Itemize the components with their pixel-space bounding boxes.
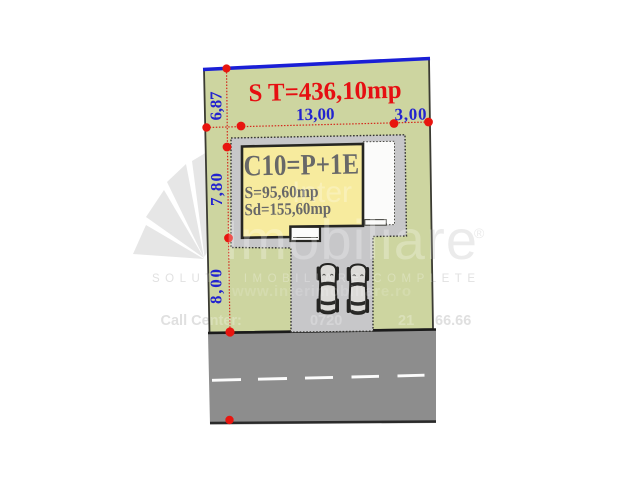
svg-text:0720: 0720 [310,313,342,329]
svg-text:www.interimobiliare.ro: www.interimobiliare.ro [231,283,411,300]
svg-text:S T=436,10mp: S T=436,10mp [248,75,402,107]
svg-text:7,80: 7,80 [207,173,226,206]
svg-text:Inter: Inter [292,176,352,209]
svg-text:21: 21 [398,313,414,329]
svg-text:®: ® [474,225,485,241]
svg-text:3,00: 3,00 [394,104,426,124]
svg-text:6,87: 6,87 [207,91,226,121]
svg-text:13,00: 13,00 [296,104,335,124]
svg-text:66.66: 66.66 [435,313,471,329]
